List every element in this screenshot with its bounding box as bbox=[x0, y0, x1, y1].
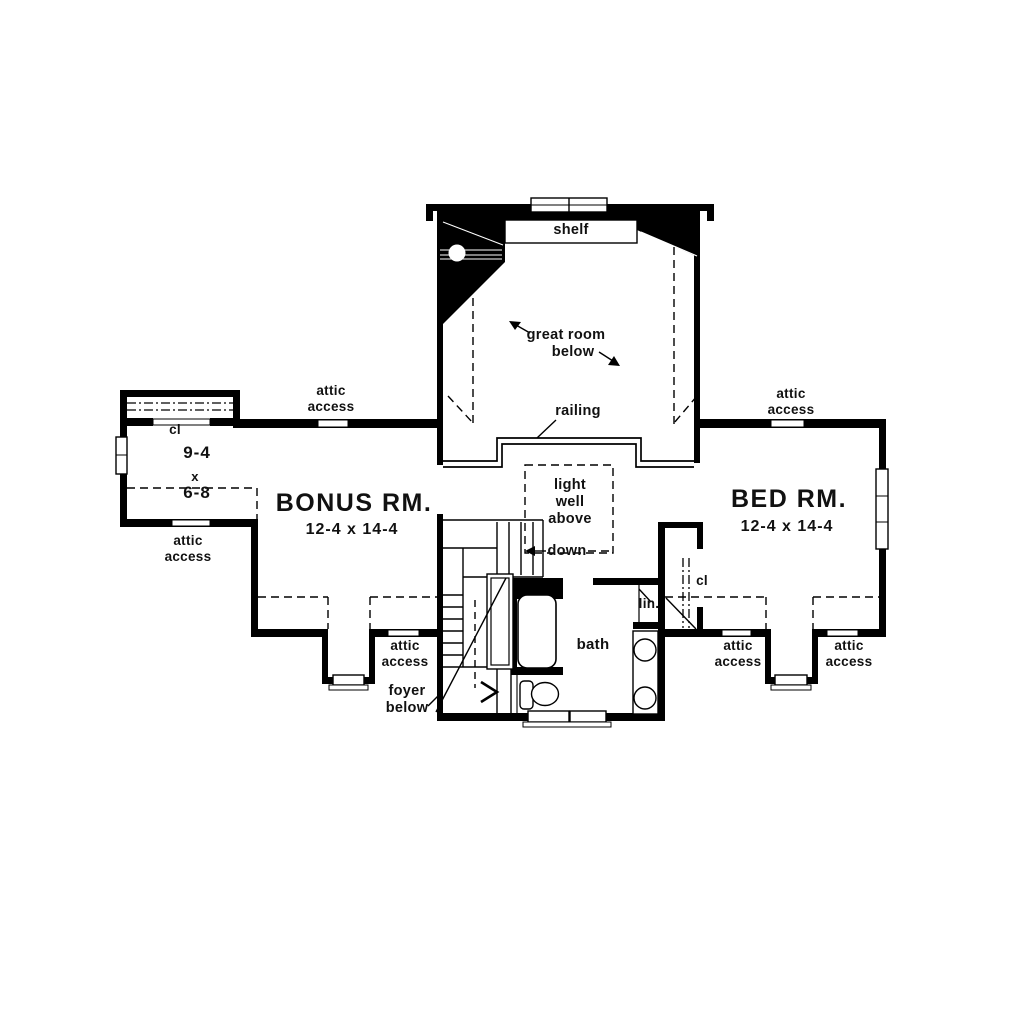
stair-arrow bbox=[481, 682, 497, 702]
railing-leader bbox=[537, 420, 556, 438]
access-line: access bbox=[826, 654, 873, 670]
bed-room-dims: 12-4 x 14-4 bbox=[741, 518, 834, 537]
wall-bedroom-stub-upper bbox=[697, 522, 703, 549]
wall-closet-top bbox=[658, 522, 703, 528]
above-line: above bbox=[548, 511, 591, 528]
attic-access-label-alcove: attic access bbox=[165, 533, 212, 565]
attic-hatch-bed-left bbox=[722, 630, 751, 636]
window-bath-1 bbox=[528, 711, 569, 722]
wall-bonus-bottom-west bbox=[251, 629, 328, 637]
wall-dormer-left-1 bbox=[322, 629, 328, 684]
window-sill-bed bbox=[771, 685, 811, 690]
bonus-room-dims: 12-4 x 14-4 bbox=[306, 521, 399, 540]
sink-icon-2 bbox=[634, 687, 656, 709]
access-line: access bbox=[308, 399, 355, 415]
wall-cap-end-right bbox=[707, 204, 714, 221]
wall-alcove-top bbox=[120, 390, 240, 397]
attic-line: attic bbox=[768, 386, 815, 402]
flue-circle bbox=[449, 245, 466, 262]
wall-linen-bottom bbox=[633, 622, 661, 629]
attic-access-label-stairs: attic access bbox=[382, 638, 429, 670]
sink-icon-1 bbox=[634, 639, 656, 661]
window-right bbox=[876, 469, 888, 549]
window-dormer-bonus bbox=[333, 675, 364, 685]
foyer-label: foyer below bbox=[386, 683, 429, 717]
wall-dormer-right-1 bbox=[369, 629, 375, 684]
attic-line: attic bbox=[308, 383, 355, 399]
access-line: access bbox=[768, 402, 815, 418]
attic-access-label-bed-left: attic access bbox=[715, 638, 762, 670]
attic-access-label-top-left: attic access bbox=[308, 383, 355, 415]
bath-label: bath bbox=[577, 636, 610, 654]
attic-line: attic bbox=[382, 638, 429, 654]
fireplace-corner-triangle bbox=[437, 262, 505, 330]
wall-dormer-left-2 bbox=[765, 629, 771, 684]
toilet-bowl-icon bbox=[532, 683, 559, 706]
closet-left-label: cl bbox=[169, 422, 181, 438]
wall-bonus-left bbox=[251, 519, 258, 637]
great-room-line1: great room bbox=[527, 327, 606, 344]
window-dormer-bed bbox=[775, 675, 807, 685]
closet-dim-depth: 6-8 bbox=[183, 483, 211, 503]
attic-hatch-top-left bbox=[318, 420, 348, 427]
access-line: access bbox=[715, 654, 762, 670]
attic-line: attic bbox=[165, 533, 212, 549]
closet-dim-width: 9-4 bbox=[183, 443, 211, 463]
well-line: well bbox=[548, 494, 591, 511]
light-well-label: light well above bbox=[548, 477, 591, 528]
shelf-label: shelf bbox=[553, 222, 588, 239]
wall-closet-stub-right bbox=[210, 418, 240, 426]
window-sill-bath bbox=[523, 722, 611, 727]
wall-closet-stub-left bbox=[127, 418, 153, 426]
below-line: below bbox=[386, 700, 429, 717]
bedroom-closet-door bbox=[666, 598, 696, 629]
bathtub-icon bbox=[518, 595, 556, 668]
attic-access-label-top-right: attic access bbox=[768, 386, 815, 418]
closet-right-label: cl bbox=[696, 573, 708, 589]
attic-line: attic bbox=[715, 638, 762, 654]
cased-opening-closet bbox=[153, 419, 210, 425]
great-room-arrow-2 bbox=[599, 352, 613, 361]
light-line: light bbox=[548, 477, 591, 494]
access-line: access bbox=[165, 549, 212, 565]
railing-lines bbox=[443, 438, 694, 467]
wall-bath-right bbox=[658, 522, 665, 721]
wall-bedroom-stub-lower bbox=[697, 607, 703, 632]
attic-hatch-bed-right bbox=[827, 630, 858, 636]
attic-hatch-alcove bbox=[172, 520, 210, 526]
floor-plan: shelf great room below railing attic acc… bbox=[0, 0, 1024, 1009]
attic-hatch-top-right bbox=[771, 420, 804, 427]
attic-line: attic bbox=[826, 638, 873, 654]
foyer-line: foyer bbox=[386, 683, 429, 700]
window-bath-2 bbox=[570, 711, 606, 722]
great-room-label: great room bbox=[527, 327, 606, 344]
bonus-room-name: BONUS RM. bbox=[276, 489, 433, 519]
linen-label: lin. bbox=[639, 596, 660, 612]
attic-access-label-bed-right: attic access bbox=[826, 638, 873, 670]
access-line: access bbox=[382, 654, 429, 670]
wall-dormer-right-2 bbox=[812, 629, 818, 684]
bath-fixtures bbox=[518, 595, 658, 714]
down-label: down bbox=[547, 543, 586, 560]
fireplace-hatch-band bbox=[437, 246, 505, 262]
railing-label: railing bbox=[555, 403, 601, 420]
wall-cap-end-left bbox=[426, 204, 433, 221]
bed-room-name: BED RM. bbox=[731, 485, 847, 515]
floor-plan-drawing bbox=[0, 0, 1024, 1009]
attic-hatch-bonus bbox=[388, 630, 419, 636]
wall-bath-top bbox=[593, 578, 661, 585]
wall-center-left-lower bbox=[437, 514, 443, 721]
corner-cabinet-top bbox=[637, 220, 700, 230]
window-sill-bonus bbox=[329, 685, 368, 690]
great-room-label-2: below bbox=[552, 344, 595, 361]
